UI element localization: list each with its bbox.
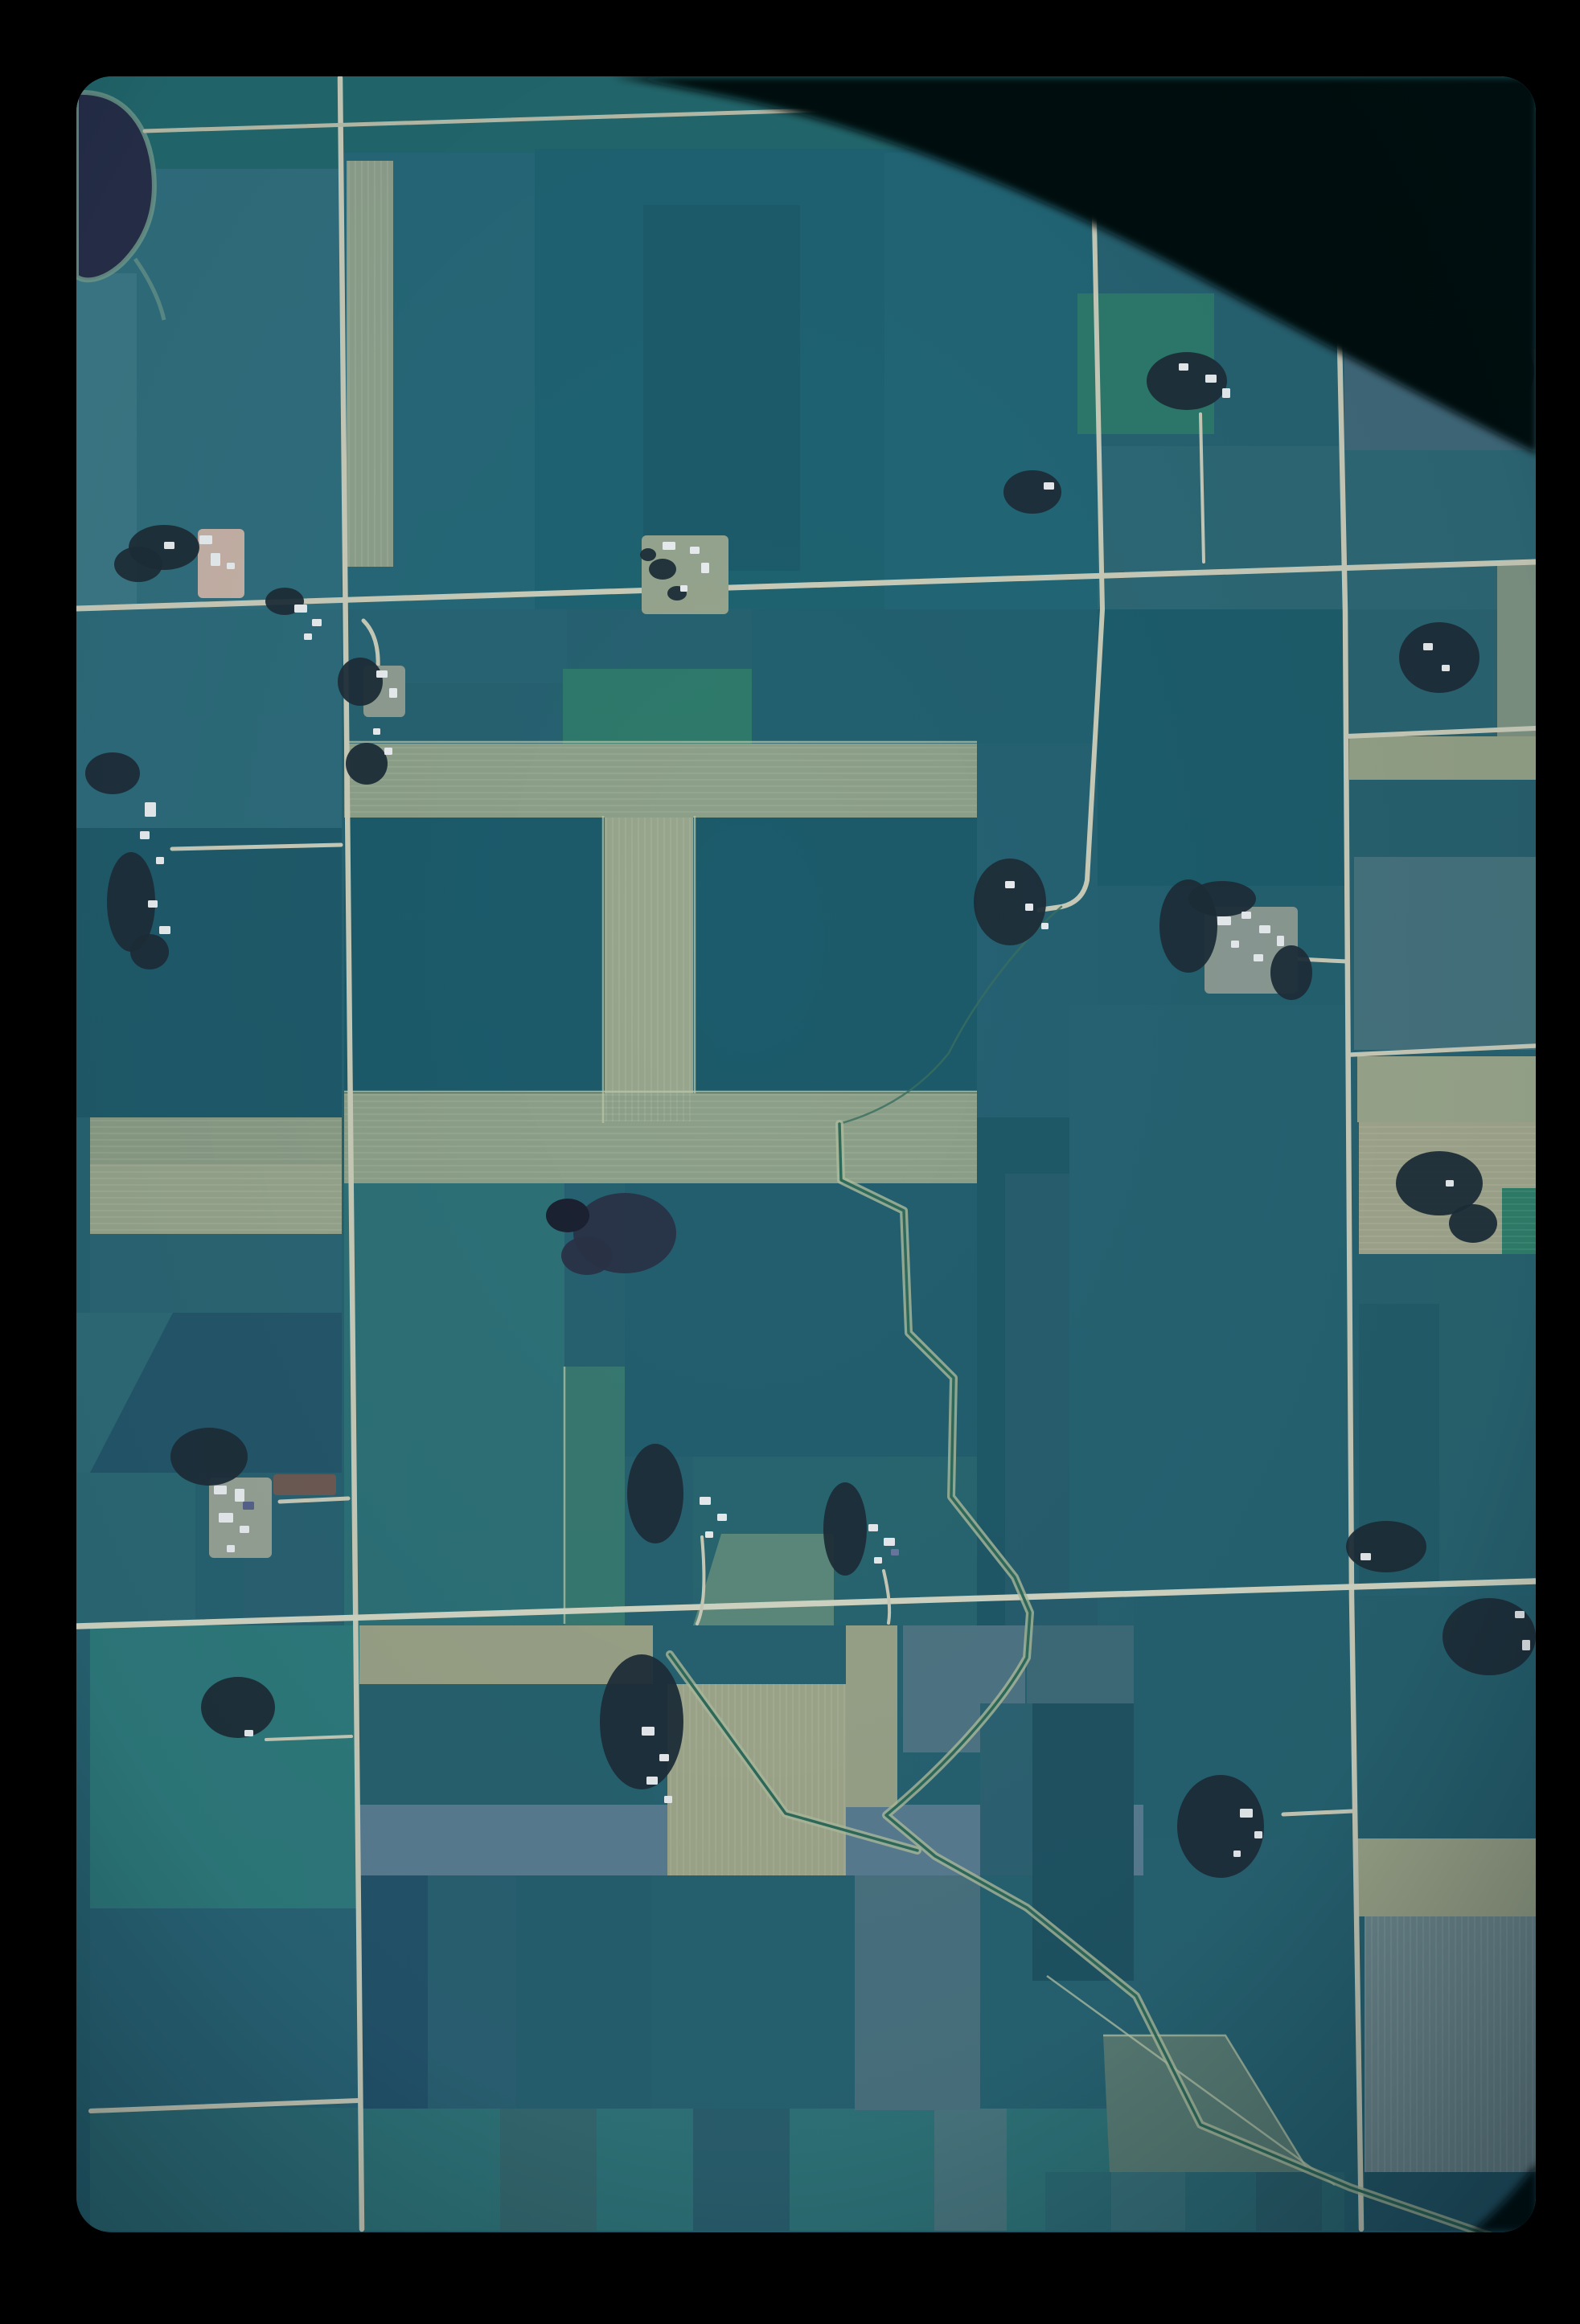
photo-content bbox=[76, 76, 1537, 2236]
film-slide-mount bbox=[0, 0, 1580, 2324]
aerial-photo bbox=[0, 0, 1580, 2324]
vignette bbox=[76, 76, 1536, 2232]
